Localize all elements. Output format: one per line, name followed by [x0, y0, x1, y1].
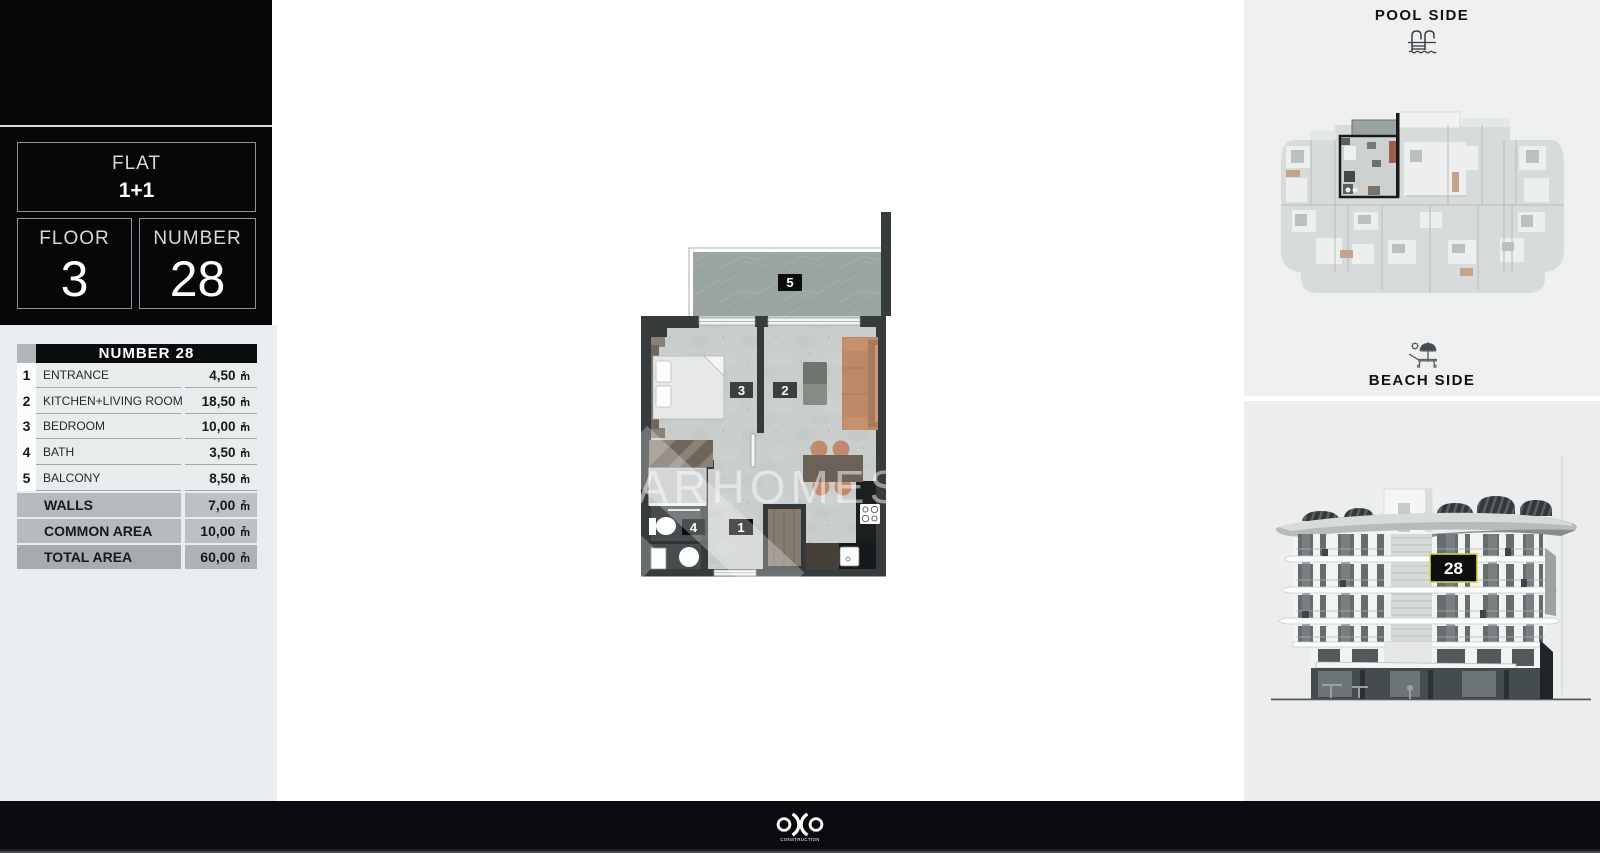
svg-text:3: 3	[738, 383, 745, 398]
svg-text:28: 28	[1444, 559, 1463, 578]
svg-text:AZARHOMES: AZARHOMES	[569, 461, 905, 513]
svg-text:2: 2	[781, 383, 788, 398]
svg-text:5: 5	[786, 275, 793, 290]
svg-text:CONSTRUCTION: CONSTRUCTION	[780, 837, 819, 842]
